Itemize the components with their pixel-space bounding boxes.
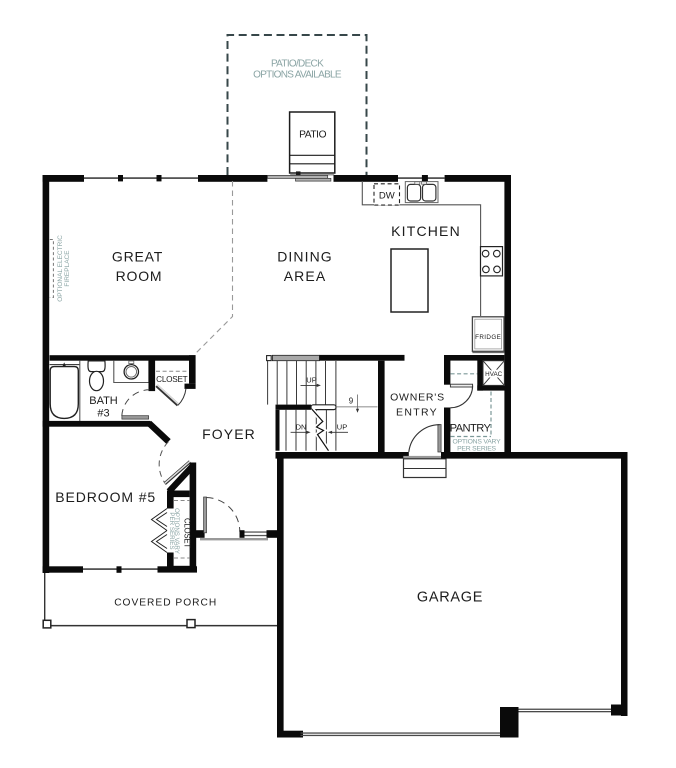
svg-text:KITCHEN: KITCHEN <box>391 223 461 239</box>
svg-text:OPTIONS AVAILABLE: OPTIONS AVAILABLE <box>253 70 342 81</box>
svg-text:UP: UP <box>337 423 347 432</box>
svg-text:FRIDGE: FRIDGE <box>475 334 501 341</box>
svg-text:HVAC: HVAC <box>485 371 502 378</box>
svg-text:DINING: DINING <box>277 249 333 265</box>
svg-text:UP: UP <box>306 376 316 385</box>
svg-text:FOYER: FOYER <box>202 426 256 442</box>
svg-text:GARAGE: GARAGE <box>417 590 483 606</box>
svg-text:CLOSET: CLOSET <box>156 375 188 384</box>
svg-text:BATH: BATH <box>89 395 118 407</box>
svg-text:DN: DN <box>296 423 307 432</box>
svg-text:9: 9 <box>349 397 354 406</box>
svg-text:OPTIONS VARY: OPTIONS VARY <box>453 438 502 445</box>
svg-text:COVERED PORCH: COVERED PORCH <box>114 598 217 609</box>
svg-text:PATIO/DECK: PATIO/DECK <box>271 59 324 70</box>
svg-text:OPTIONAL ELECTRIC: OPTIONAL ELECTRIC <box>57 235 64 302</box>
svg-text:PER SERIES: PER SERIES <box>168 512 175 549</box>
svg-text:PATIO: PATIO <box>299 130 327 141</box>
svg-text:BEDROOM #5: BEDROOM #5 <box>55 489 156 505</box>
svg-text:ENTRY: ENTRY <box>396 406 438 418</box>
svg-text:OWNER'S: OWNER'S <box>390 392 445 404</box>
svg-text:DW: DW <box>379 191 395 202</box>
svg-text:ROOM: ROOM <box>116 268 163 284</box>
svg-text:AREA: AREA <box>284 268 327 284</box>
svg-text:GREAT: GREAT <box>112 249 163 265</box>
svg-text:#3: #3 <box>97 407 109 419</box>
svg-text:PANTRY: PANTRY <box>450 423 492 435</box>
svg-text:FIREPLACE: FIREPLACE <box>64 250 71 287</box>
svg-text:PER SERIES: PER SERIES <box>457 446 496 453</box>
svg-text:CLOSET: CLOSET <box>183 518 192 548</box>
